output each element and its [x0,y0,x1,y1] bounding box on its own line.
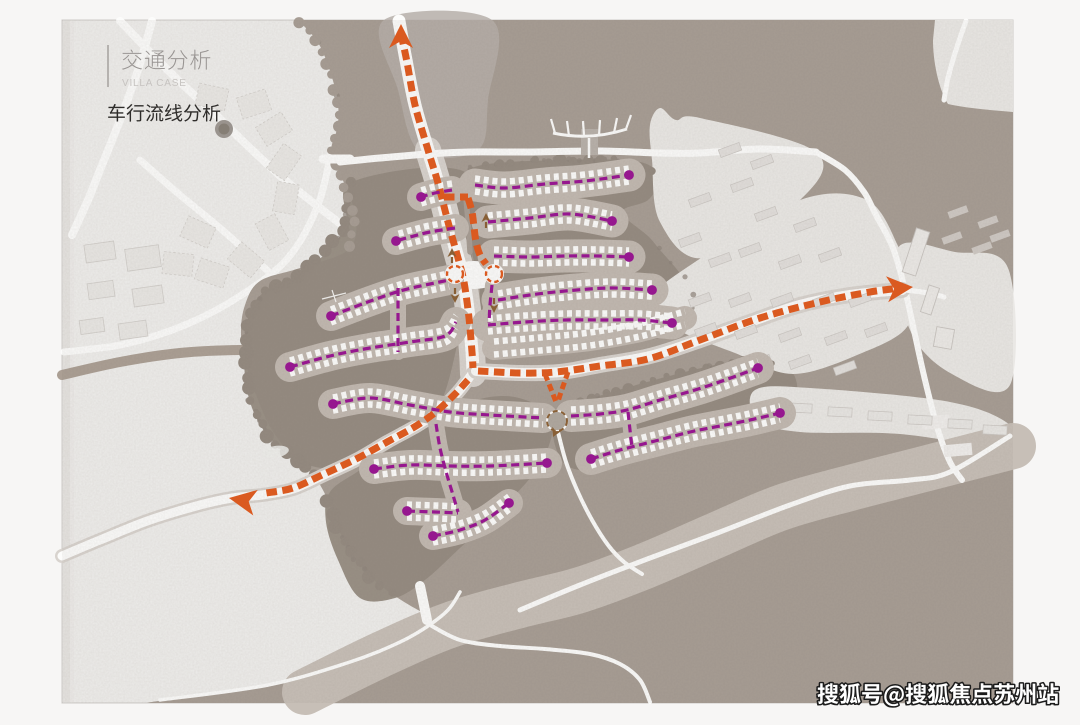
svg-text:VILLA CASE: VILLA CASE [122,78,187,89]
